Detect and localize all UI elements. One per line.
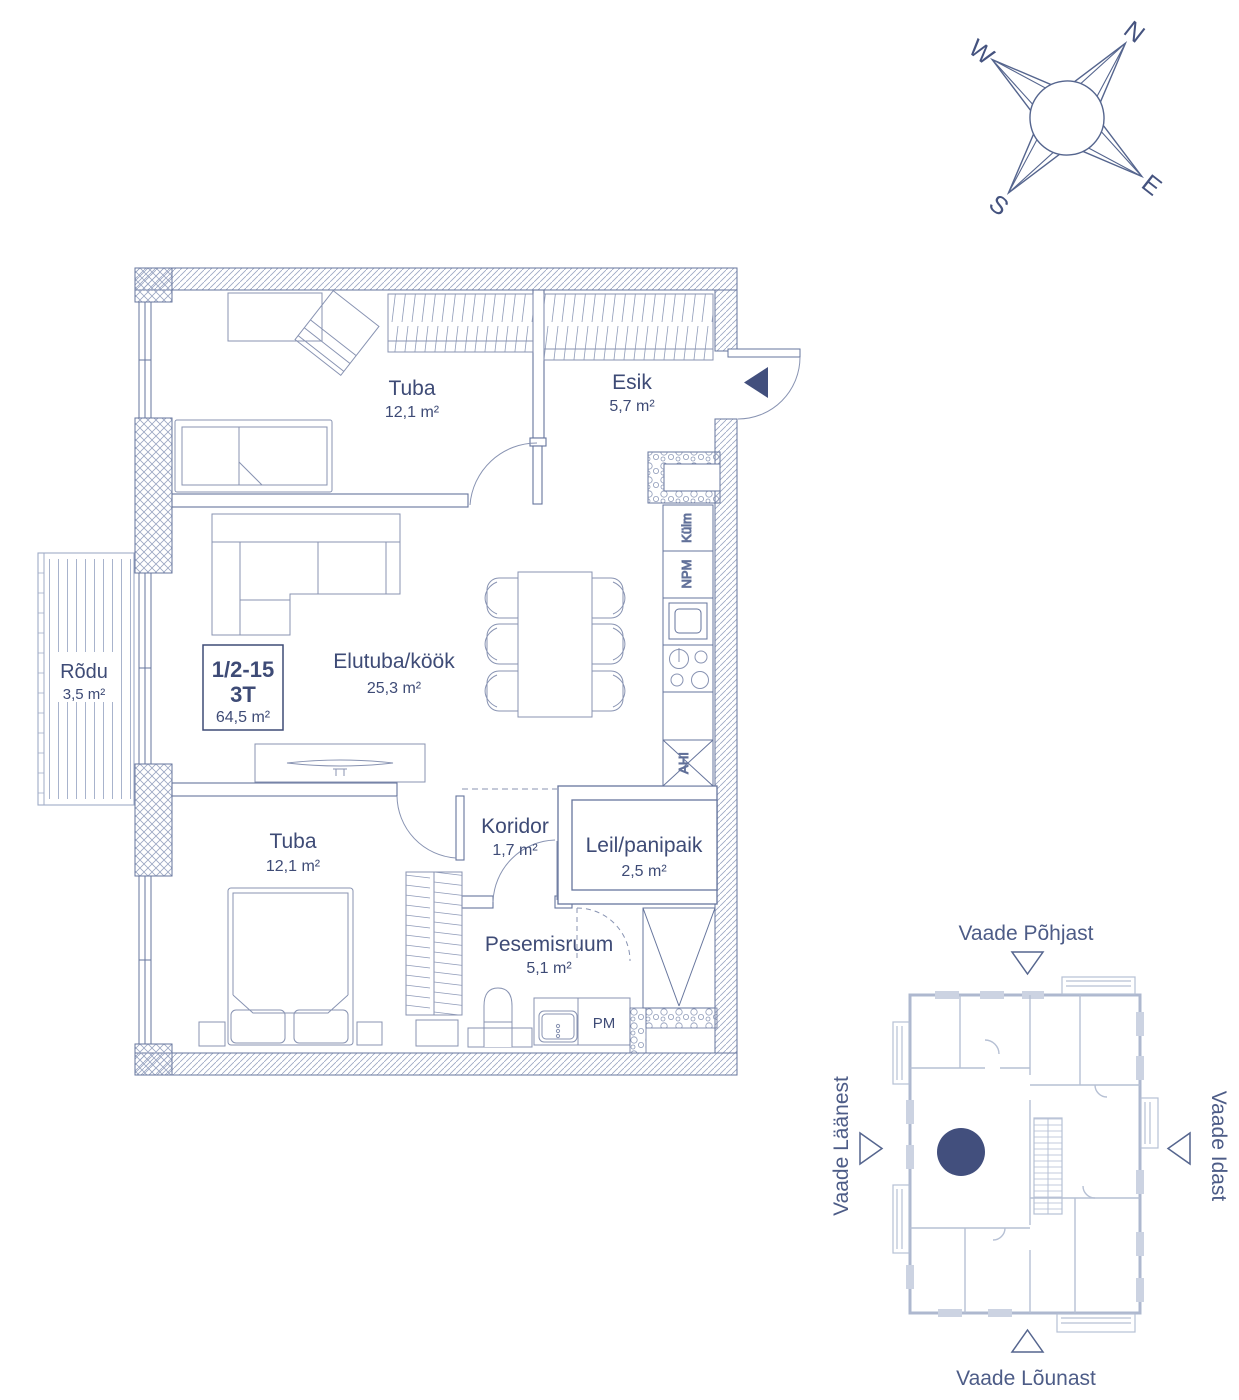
room-pesemisruum-name: Pesemisruum <box>485 933 613 956</box>
compass-rose: N E S W <box>896 0 1235 288</box>
wall-right-upper <box>715 290 737 351</box>
chair <box>295 291 379 376</box>
room-rodu-name: Rõdu <box>60 661 108 683</box>
windows <box>135 302 172 1044</box>
dining-set <box>485 572 625 717</box>
pebble-band-h <box>646 1008 717 1028</box>
wall-koridor-south-a <box>462 896 493 908</box>
cabinet-below-wardrobe <box>416 1020 458 1046</box>
room-tuba1-name: Tuba <box>388 377 435 400</box>
window-balcony-door <box>135 573 172 764</box>
desk <box>228 293 322 341</box>
nightstand-left <box>199 1022 225 1046</box>
unit-type: 3T <box>230 682 256 707</box>
tv-stand <box>255 744 425 782</box>
room-esik-name: Esik <box>612 371 652 394</box>
entrance-door-swing <box>738 357 800 419</box>
wardrobe-esik <box>544 294 713 360</box>
kitchen: Külm NPM AHI <box>648 452 720 786</box>
bed-double <box>228 888 353 1045</box>
sofa <box>212 514 400 635</box>
room-elutuba-name: Elutuba/köök <box>333 650 455 673</box>
view-west-label: Vaade Läänest <box>830 1076 853 1216</box>
door-tuba1-swing <box>470 443 537 505</box>
compass-circle <box>1015 66 1119 170</box>
door-tuba2-leaf <box>456 796 464 860</box>
room-esik-area: 5,7 m² <box>609 398 655 415</box>
room-tuba1-area: 12,1 m² <box>385 404 440 421</box>
wall-bottom <box>135 1053 737 1075</box>
bathroom-sink <box>534 998 630 1045</box>
site-balconies <box>893 977 1158 1332</box>
wall-left-2 <box>135 418 172 573</box>
bed-single <box>175 420 332 492</box>
compass-north-label: N <box>1118 16 1149 49</box>
view-south-arrow-icon <box>1012 1330 1043 1352</box>
tall-closet <box>643 908 715 1008</box>
view-east-arrow-icon <box>1168 1133 1190 1164</box>
room-tuba2-name: Tuba <box>269 830 316 853</box>
room-koridor-area: 1,7 m² <box>492 842 538 859</box>
door-tuba2-swing <box>397 796 456 858</box>
room-pesemisruum: PM Pesemisruum 5,1 m² <box>468 908 717 1053</box>
wall-top <box>135 268 737 290</box>
oven-label: AHI <box>676 752 691 774</box>
compass-west-label: W <box>963 34 999 71</box>
view-west-arrow-icon <box>860 1133 882 1164</box>
site-plan: Vaade Põhjast Vaade Lõunast Vaade Läänes… <box>830 922 1230 1390</box>
room-koridor: Koridor 1,7 m² <box>481 815 549 859</box>
room-pesemisruum-area: 5,1 m² <box>526 960 572 977</box>
unit-number: 1/2-15 <box>212 657 274 682</box>
wall-living-tuba2 <box>172 783 397 796</box>
wardrobe-tuba1 <box>388 294 533 352</box>
room-tuba1: Tuba 12,1 m² <box>175 291 533 492</box>
site-stairs <box>1034 1118 1062 1214</box>
room-leil-name: Leil/panipaik <box>586 834 703 857</box>
view-south-label: Vaade Lõunast <box>956 1367 1096 1390</box>
floor-plan-page: N E S W Rõdu 3,5 m² <box>0 0 1239 1400</box>
nightstand-right <box>357 1022 382 1045</box>
wall-left-4 <box>135 1044 172 1075</box>
balcony: Rõdu 3,5 m² <box>38 553 134 805</box>
toilet <box>484 988 512 1047</box>
window-tuba1 <box>135 302 172 418</box>
door-tuba1-leaf <box>533 446 542 504</box>
wall-left-3 <box>135 764 172 876</box>
unit-area: 64,5 m² <box>216 709 271 726</box>
fridge-label: Külm <box>679 513 694 543</box>
dishwasher-label: NPM <box>679 560 694 589</box>
wall-left-1 <box>135 268 172 302</box>
entrance-arrow-icon <box>744 367 768 398</box>
compass-south-label: S <box>983 189 1013 221</box>
washing-machine-label: PM <box>593 1015 616 1032</box>
room-tuba2-area: 12,1 m² <box>266 858 321 875</box>
compass-east-label: E <box>1136 169 1166 201</box>
room-esik: Esik 5,7 m² <box>544 294 713 415</box>
wardrobe-tuba2 <box>406 872 462 1015</box>
view-north-label: Vaade Põhjast <box>958 922 1093 945</box>
unit-label-box: 1/2-15 3T 64,5 m² <box>203 645 283 730</box>
wall-right-lower <box>715 419 737 1053</box>
wall-tuba1-south <box>172 494 468 507</box>
wall-tuba1-esik <box>533 290 544 438</box>
room-tuba2: Tuba 12,1 m² <box>199 830 462 1046</box>
window-tuba2 <box>135 876 172 1044</box>
room-koridor-name: Koridor <box>481 815 549 838</box>
apartment-location-marker <box>937 1128 985 1176</box>
room-rodu-area: 3,5 m² <box>63 686 106 703</box>
room-leil-area: 2,5 m² <box>621 863 667 880</box>
pebble-band-v <box>630 1008 646 1053</box>
room-elutuba-area: 25,3 m² <box>367 680 422 697</box>
floor-plan-canvas: N E S W Rõdu 3,5 m² <box>0 0 1239 1400</box>
entrance-door-leaf <box>728 349 800 357</box>
view-north-arrow-icon <box>1012 952 1043 974</box>
dining-table <box>518 572 592 717</box>
view-east-label: Vaade Idast <box>1207 1091 1230 1202</box>
entrance <box>728 349 800 419</box>
